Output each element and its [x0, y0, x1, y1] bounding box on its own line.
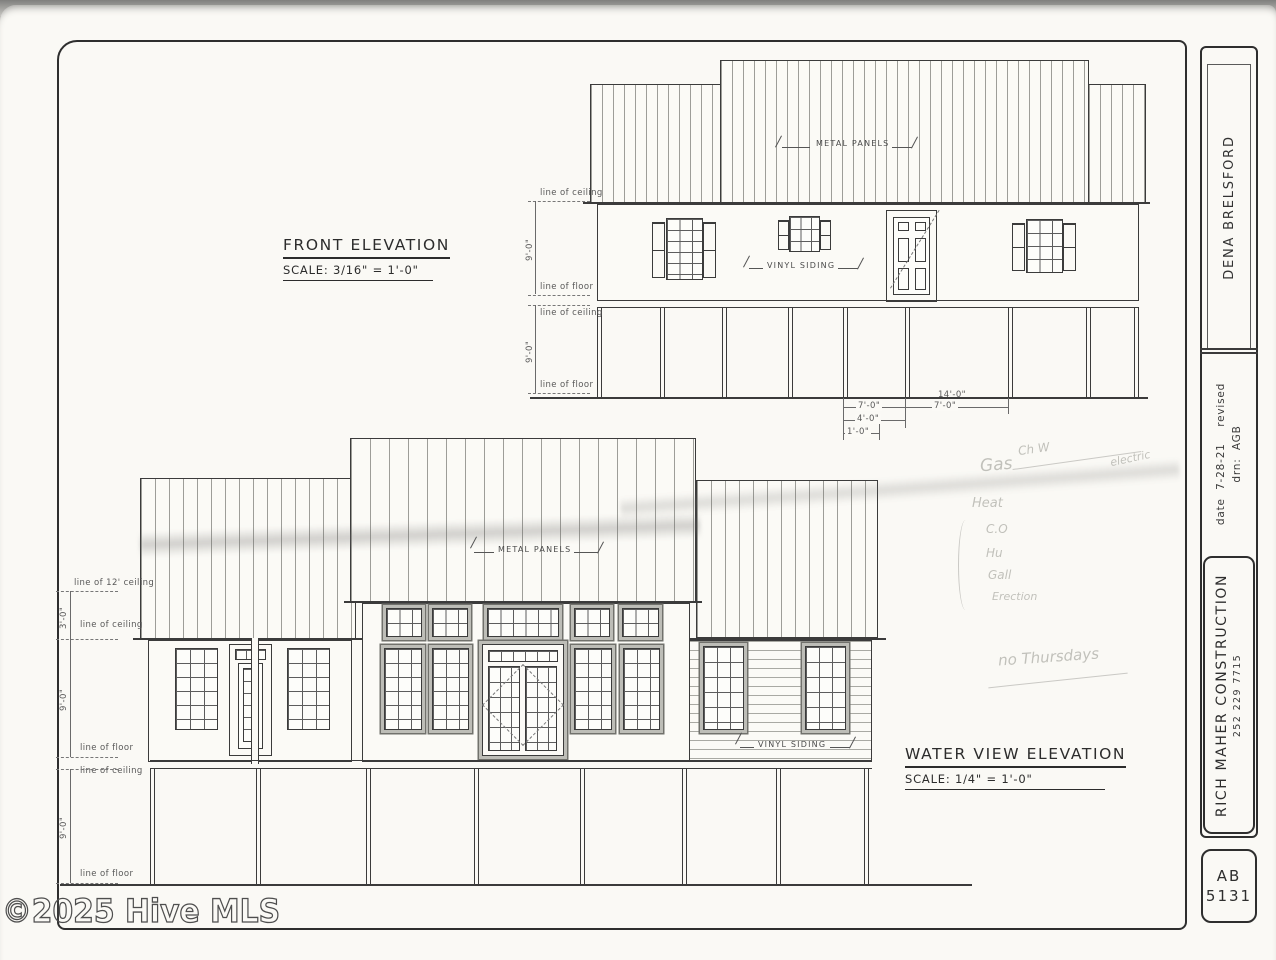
mls-watermark: ©2025 Hive MLS [2, 892, 280, 930]
pencil-note: Hu [986, 546, 1003, 560]
pencil-brace [958, 520, 973, 610]
pencil-note: no Thursdays [997, 644, 1099, 669]
scanned-sheet: DENA BRELSFORD date 7-28-21 revised drn:… [0, 0, 1276, 960]
pencil-line [988, 673, 1127, 689]
pencil-note: Erection [992, 590, 1037, 603]
pencil-note: Heat [972, 496, 1003, 511]
pencil-note: Ch W [1017, 440, 1050, 458]
pencil-note: Gall [988, 568, 1011, 582]
pencil-note: C.O [986, 522, 1008, 536]
